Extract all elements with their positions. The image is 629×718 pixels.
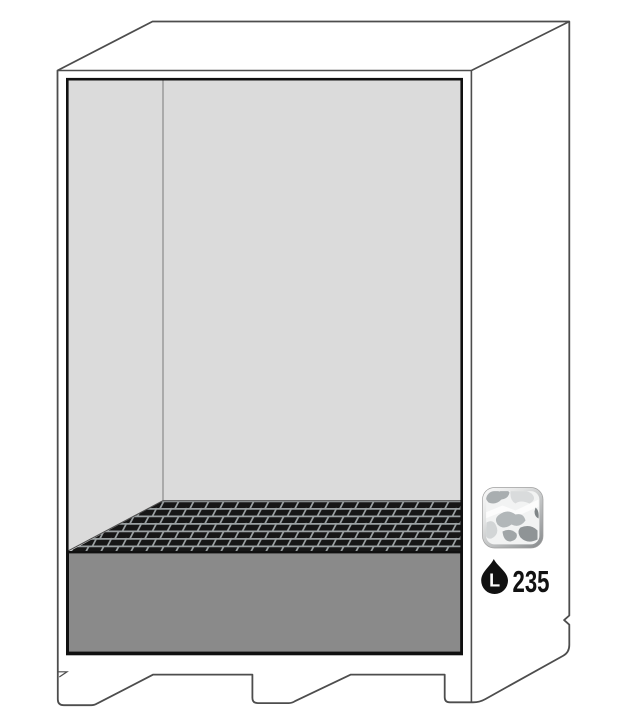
product-illustration: L 235 bbox=[0, 0, 629, 718]
droplet-unit-label: L bbox=[489, 571, 500, 591]
capacity-value-label: 235 bbox=[513, 564, 550, 599]
interior-walls bbox=[69, 80, 461, 550]
cabinet-illustration: L 235 bbox=[0, 0, 629, 718]
sump-tray-texture-icon bbox=[483, 488, 544, 549]
spill-sump bbox=[68, 552, 462, 653]
capacity-label-group: L 235 bbox=[481, 559, 549, 599]
